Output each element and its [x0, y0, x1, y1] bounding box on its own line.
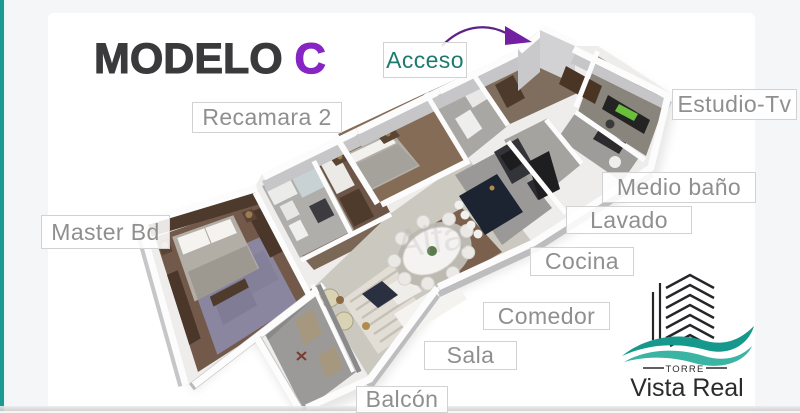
svg-text:Vista Real: Vista Real: [630, 374, 744, 402]
